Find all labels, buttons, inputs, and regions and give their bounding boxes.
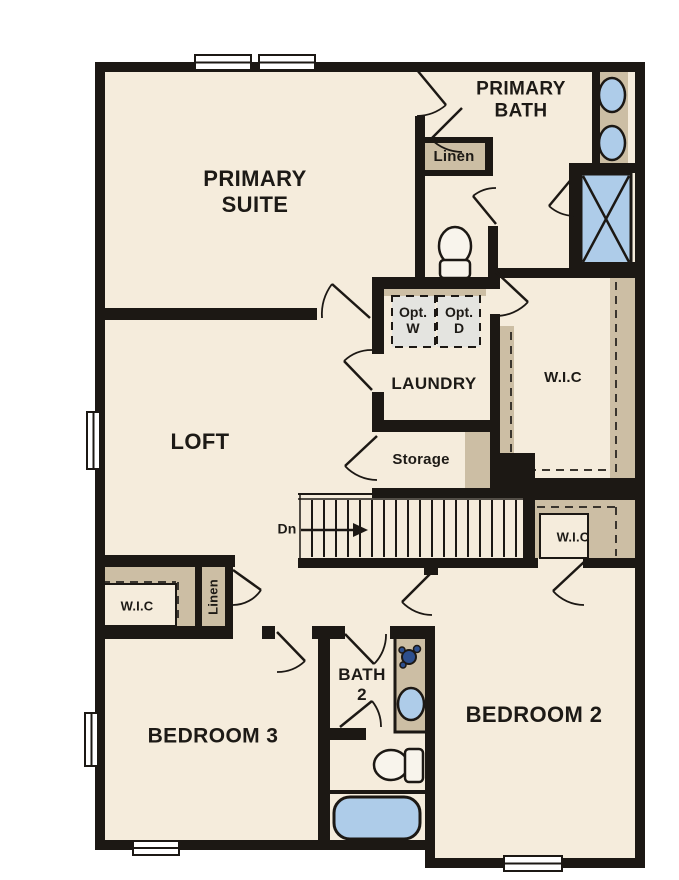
linen-closet-hall (202, 567, 225, 626)
toilet-primary (439, 227, 471, 278)
floor-area (100, 67, 640, 865)
floor-plan: PRIMARY SUITE PRIMARY BATH Linen Opt. W … (0, 0, 679, 880)
wic-primary-shelf-right (610, 278, 635, 478)
storage-shelf (465, 432, 490, 490)
toilet-bath2 (374, 749, 423, 782)
primary-sink-1 (599, 78, 625, 112)
bath2-sink (398, 688, 424, 720)
floor-plan-drawing (0, 0, 679, 880)
primary-sink-2 (599, 126, 625, 160)
optional-dryer-box (437, 296, 480, 347)
linen-closet-top (421, 142, 485, 171)
bathtub (334, 797, 420, 839)
optional-washer-box (392, 296, 435, 347)
